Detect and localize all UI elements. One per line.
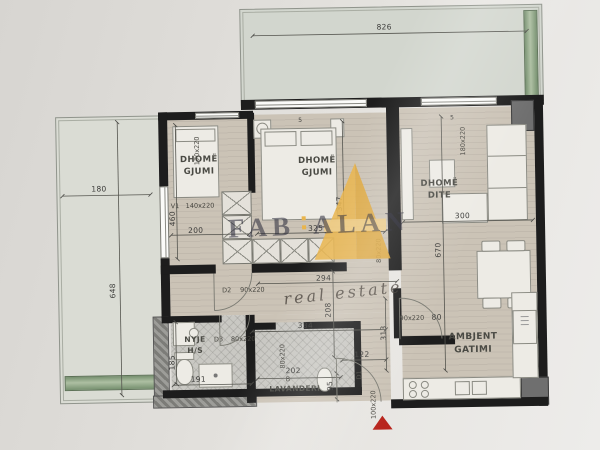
label-door-d2-code: D2 — [222, 286, 231, 294]
label-door-d3-size: 80x220 — [231, 335, 256, 343]
tv-cabinet — [400, 128, 414, 220]
sink-basin — [455, 381, 470, 395]
dim-entry-height: 313 — [379, 325, 388, 340]
sink-basin — [472, 381, 487, 395]
dim-hall-total-width: 334 — [298, 321, 313, 330]
dim-hall-width: 294 — [316, 273, 331, 282]
terrace-planter — [523, 10, 538, 96]
bed-double-pillow — [264, 131, 296, 147]
room-label-line: AMBJENT — [438, 330, 508, 344]
balcony-left — [55, 115, 168, 404]
label-door-d3-code: D3 — [214, 335, 223, 343]
wall-bedroom-left-south — [161, 264, 216, 274]
floor-plan-photo: 826 180 648 460 200 325 347 294 208 334 … — [0, 0, 600, 450]
dim-bedroom-center-width: 325 — [308, 224, 323, 233]
window-bedroom-left — [195, 112, 239, 119]
dim-terrace-width: 826 — [376, 22, 391, 31]
bed-double-pillow — [300, 130, 332, 146]
wall-bedroom-center-south — [252, 262, 347, 273]
wall-west-upper — [158, 112, 168, 186]
dim-balcony-width: 180 — [91, 184, 106, 193]
room-label-bedroom-left: DHOMË GJUMI — [169, 153, 229, 179]
label-laundry-note: B — [286, 375, 291, 383]
wardrobe — [252, 238, 280, 263]
room-label-line: DHOMË — [287, 154, 347, 167]
dim-laundry-width: 202 — [285, 366, 300, 375]
dim-bathroom-height: 185 — [167, 355, 176, 370]
label-entry-door-code: D1 — [355, 370, 363, 379]
chair — [482, 297, 501, 308]
label-living-window: 180x220 — [459, 127, 467, 156]
floor-plan: 826 180 648 460 200 325 347 294 208 334 … — [0, 0, 600, 455]
window-living — [421, 97, 497, 106]
label-hall-passage: 80x220 — [375, 238, 383, 263]
label-window-v1-code: V1 — [171, 202, 180, 210]
shower-drain — [214, 373, 218, 377]
dim-bathroom-width: 191 — [191, 375, 206, 384]
wall-bathroom-south — [163, 389, 256, 399]
label-laundry-door: 80x220 — [278, 344, 286, 369]
dim-kitchen-door-offset: 80 — [432, 313, 442, 322]
room-label-kitchen: AMBJENT GATIMI — [438, 330, 508, 357]
dim-bedroom-center-height: 347 — [335, 196, 344, 211]
room-label-line: GJUMI — [169, 166, 229, 179]
wardrobe — [222, 239, 252, 265]
fridge-vents — [521, 316, 529, 317]
room-label-laundry: LAVANDERI — [255, 383, 335, 395]
room-label-line: LAVANDERI — [255, 383, 335, 395]
room-label-bathroom: NYJE H/S — [177, 335, 213, 357]
room-label-line: DITE — [409, 189, 469, 202]
dim-entry-width: 122 — [354, 350, 369, 359]
room-label-bedroom-center: DHOMË GJUMI — [287, 154, 347, 180]
fridge — [513, 310, 538, 344]
dim-balcony-length: 648 — [108, 283, 117, 298]
wardrobe — [222, 215, 252, 240]
room-label-line: GATIMI — [438, 343, 508, 357]
wardrobe — [221, 191, 251, 216]
room-label-line: H/S — [177, 345, 213, 357]
terrace — [239, 4, 544, 106]
room-label-line: GJUMI — [287, 166, 347, 179]
dim-bedroom-left-height: 460 — [168, 211, 177, 226]
stove-burner — [409, 381, 417, 389]
label-door-d2-size: 90x220 — [240, 286, 265, 294]
label-window-v1-size: 140x220 — [186, 201, 215, 209]
dim-living-height: 670 — [433, 242, 442, 257]
wardrobe — [280, 238, 308, 263]
dim-tick-left: 5 — [298, 117, 302, 124]
room-label-line: DHOMË — [409, 177, 469, 190]
label-entry-door-size: 100x220 — [369, 390, 377, 419]
label-kitchen-door: 90x220 — [400, 314, 425, 322]
dim-hall-height: 208 — [323, 302, 332, 317]
chair — [506, 240, 525, 251]
room-label-living: DHOMË DITE — [409, 177, 469, 203]
wardrobe — [308, 237, 334, 262]
balcony-planter — [65, 374, 162, 391]
dim-tick-right: 5 — [450, 114, 454, 121]
chair — [481, 241, 500, 252]
dim-bedroom-left-width: 200 — [188, 226, 203, 235]
wall-laundry-north-a — [254, 322, 276, 329]
room-label-line: NYJE — [177, 335, 213, 347]
dim-living-width: 300 — [455, 211, 470, 220]
sofa — [486, 124, 528, 221]
room-label-line: DHOMË — [169, 153, 229, 166]
stove-burner — [409, 390, 417, 398]
